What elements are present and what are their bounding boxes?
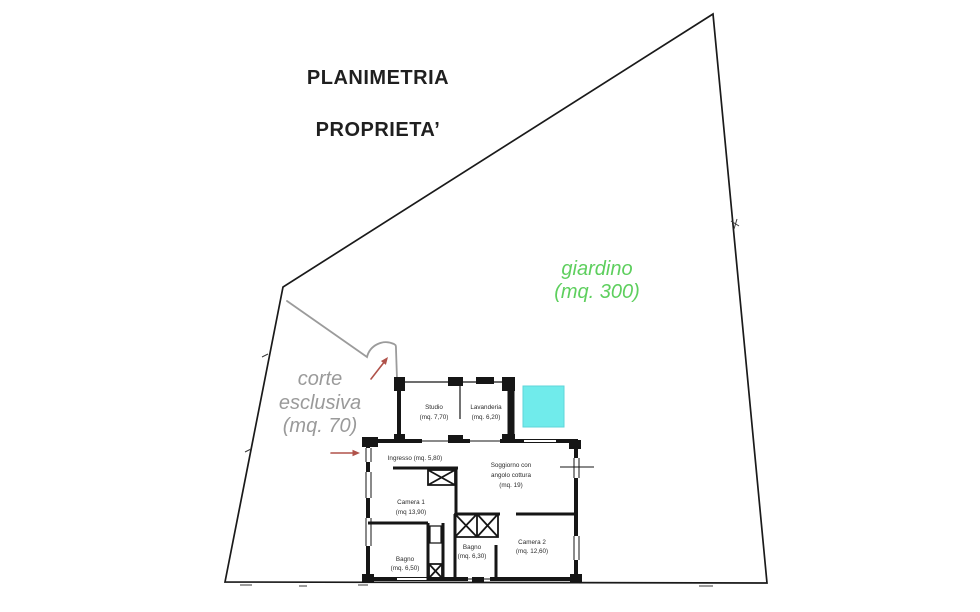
room-label-soggiorno-line2: angolo cottura [491, 472, 531, 479]
room-label-lavanderia-area: (mq. 6,20) [472, 414, 501, 421]
room-label-ingresso: Ingresso (mq. 5,80) [388, 455, 443, 462]
room-label-studio-area: (mq. 7,70) [420, 414, 449, 421]
garden-name: giardino [561, 258, 632, 280]
room-label-bagno1-name: Bagno [396, 556, 415, 563]
room-label-camera2-name: Camera 2 [518, 539, 546, 546]
court-line2: esclusiva [279, 392, 361, 414]
cyan-highlight-square [523, 386, 564, 427]
planimetria-document: PLANIMETRIA PROPRIETA’ giardino (mq. 300… [0, 0, 980, 612]
room-label-soggiorno-line1: Soggiorno con [491, 462, 532, 469]
boundary-outline [225, 14, 767, 583]
room-label-bagno2-area: (mq. 6,30) [458, 553, 487, 560]
entrance-arrow-head [353, 450, 361, 456]
room-label-lavanderia-name: Lavanderia [470, 404, 502, 411]
entrance-arrow [331, 450, 360, 456]
garden-label: giardino (mq. 300) [554, 258, 640, 303]
room-labels: Studio (mq. 7,70) Lavanderia (mq. 6,20) … [388, 404, 548, 572]
room-label-bagno1-area: (mq. 6,50) [391, 565, 420, 572]
room-label-bagno2-name: Bagno [463, 544, 482, 551]
crossed-boxes [428, 470, 498, 578]
room-label-soggiorno-area: (mq. 19) [499, 482, 522, 489]
court-area: (mq. 70) [283, 415, 357, 437]
property-boundary [225, 14, 767, 586]
subtitle: PROPRIETA’ [316, 119, 441, 141]
room-label-camera2-area: (mq. 12,60) [516, 548, 548, 555]
court-label: corte esclusiva (mq. 70) [279, 368, 361, 437]
gate-arrow-line [371, 361, 385, 379]
room-label-camera1-area: (mq 13,90) [396, 509, 426, 516]
garden-area: (mq. 300) [554, 281, 640, 303]
room-label-studio-name: Studio [425, 404, 443, 411]
plan-canvas: PLANIMETRIA PROPRIETA’ giardino (mq. 300… [0, 0, 980, 612]
room-label-camera1-name: Camera 1 [397, 499, 425, 506]
main-title: PLANIMETRIA [307, 67, 449, 89]
gate-arrow [371, 357, 388, 379]
court-line1: corte [298, 368, 342, 390]
